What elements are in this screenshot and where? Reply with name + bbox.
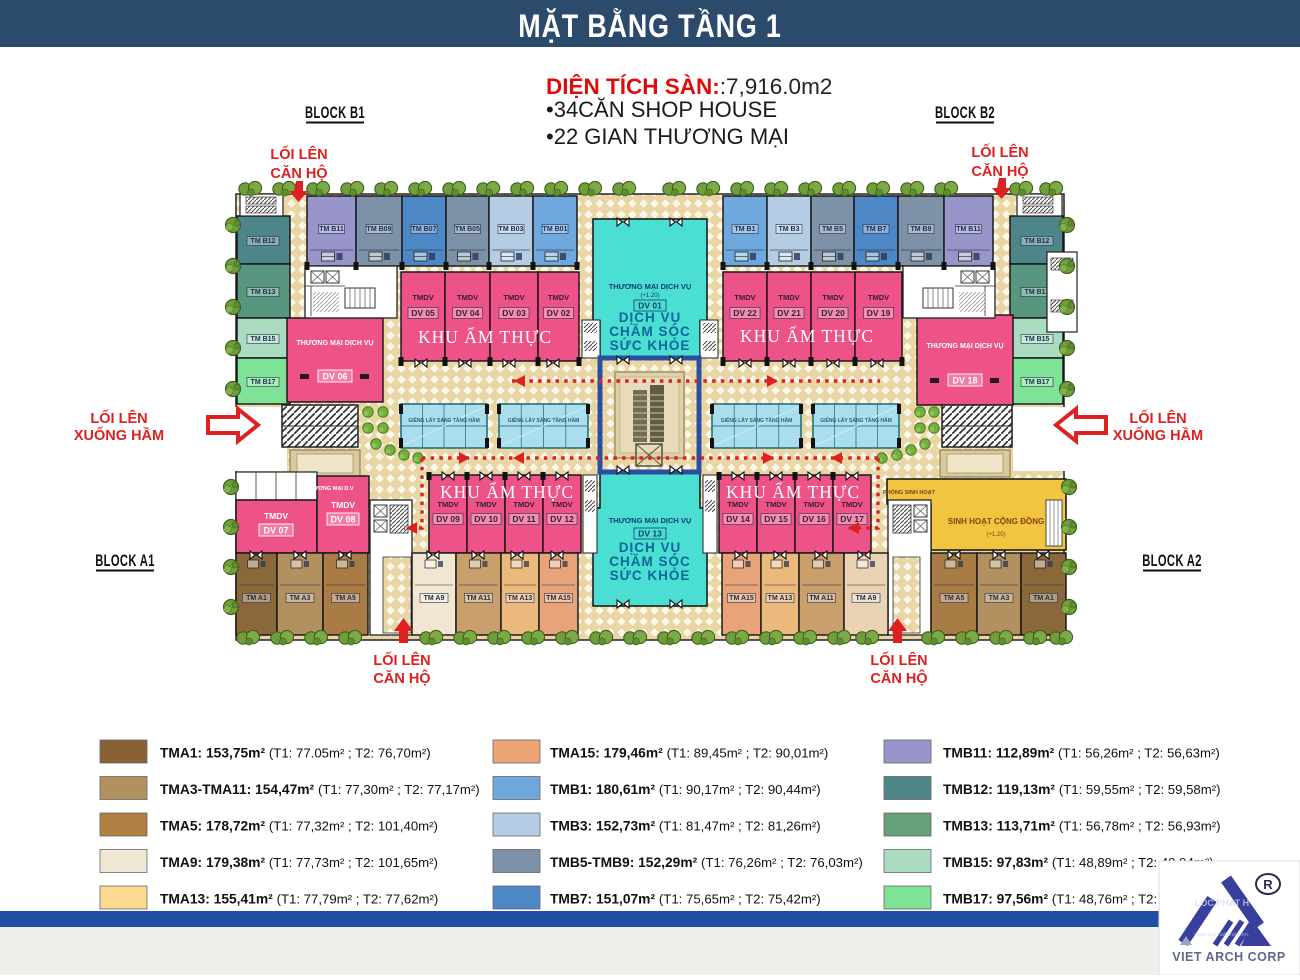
svg-text:DV 14: DV 14 xyxy=(726,514,750,524)
svg-text:DV 17: DV 17 xyxy=(840,514,864,524)
svg-text:DV 02: DV 02 xyxy=(547,308,571,318)
svg-text:GIẾNG LẤY SÁNG TẦNG HẦM: GIẾNG LẤY SÁNG TẦNG HẦM xyxy=(820,417,892,424)
svg-text:DỊCH VỤ: DỊCH VỤ xyxy=(619,540,682,555)
svg-text:TM B1: TM B1 xyxy=(735,226,756,233)
svg-text:THƯƠNG MẠI DỊCH VỤ: THƯƠNG MẠI DỊCH VỤ xyxy=(609,516,692,525)
svg-text:TMDV: TMDV xyxy=(331,500,355,510)
svg-text:TM B05: TM B05 xyxy=(455,226,480,233)
svg-text:TM A5: TM A5 xyxy=(335,595,356,602)
svg-text:LỐI LÊN: LỐI LÊN xyxy=(373,651,430,669)
svg-text:•22 GIAN THƯƠNG MẠI: •22 GIAN THƯƠNG MẠI xyxy=(546,124,789,149)
svg-text:TM B12: TM B12 xyxy=(251,238,276,245)
svg-text:(+1.20): (+1.20) xyxy=(640,293,659,299)
svg-text:KHU ẨM THỰC: KHU ẨM THỰC xyxy=(740,326,874,346)
svg-text:TMB1: 180,61m² (T1: 90,17m² ;: TMB1: 180,61m² (T1: 90,17m² ; T2: 90,44m… xyxy=(550,782,821,797)
svg-text:LỐI LÊN: LỐI LÊN xyxy=(870,651,927,669)
svg-text:TM A11: TM A11 xyxy=(809,595,833,602)
svg-text:www.locphatland.com.: www.locphatland.com. xyxy=(1194,932,1250,938)
svg-text:TMB5-TMB9: 152,29m² (T1: 76,26: TMB5-TMB9: 152,29m² (T1: 76,26m² ; T2: 7… xyxy=(550,855,863,870)
svg-text:CĂN HỘ: CĂN HỘ xyxy=(870,669,927,687)
svg-text:PHÒNG SINH HOẠT: PHÒNG SINH HOẠT xyxy=(883,488,936,496)
svg-text:XUỐNG HẦM: XUỐNG HẦM xyxy=(1113,426,1203,444)
svg-text:TMDV: TMDV xyxy=(734,293,755,302)
svg-text:TM B07: TM B07 xyxy=(412,226,437,233)
svg-text:TM A9: TM A9 xyxy=(856,595,877,602)
svg-text:TMB7: 151,07m² (T1: 75,65m² ;: TMB7: 151,07m² (T1: 75,65m² ; T2: 75,42m… xyxy=(550,892,821,907)
svg-text:SINH HOẠT CỘNG ĐỒNG: SINH HOẠT CỘNG ĐỒNG xyxy=(948,516,1044,526)
svg-text:DV 13: DV 13 xyxy=(638,529,662,539)
svg-text:R: R xyxy=(1263,877,1273,892)
svg-text:TM A15: TM A15 xyxy=(729,595,754,602)
svg-text:DV 20: DV 20 xyxy=(821,308,845,318)
svg-text:DV 16: DV 16 xyxy=(802,514,826,524)
svg-text:TM B15: TM B15 xyxy=(1025,336,1050,343)
svg-text:TMDV: TMDV xyxy=(457,293,478,302)
svg-text:CĂN HỘ: CĂN HỘ xyxy=(971,162,1028,180)
svg-text:TMA13: 155,41m² (T1: 77,79m² ;: TMA13: 155,41m² (T1: 77,79m² ; T2: 77,62… xyxy=(160,892,438,907)
svg-text:LOC PHAT H: LOC PHAT H xyxy=(1195,898,1249,908)
svg-text:DV 22: DV 22 xyxy=(733,308,757,318)
svg-text:TM A11: TM A11 xyxy=(466,595,490,602)
svg-text:TMB12: 119,13m² (T1: 59,55m² ;: TMB12: 119,13m² (T1: 59,55m² ; T2: 59,58… xyxy=(943,782,1221,797)
svg-text:TM A1: TM A1 xyxy=(1033,595,1054,602)
svg-text:TMA9: 179,38m² (T1: 77,73m² ;: TMA9: 179,38m² (T1: 77,73m² ; T2: 101,65… xyxy=(160,855,438,870)
svg-text:DV 11: DV 11 xyxy=(512,514,535,524)
svg-text:DV 06: DV 06 xyxy=(322,372,347,382)
svg-text:TM B15: TM B15 xyxy=(251,336,276,343)
svg-text:KHU ẨM THỰC: KHU ẨM THỰC xyxy=(418,327,552,347)
svg-text:TMA5: 178,72m² (T1: 77,32m² ;: TMA5: 178,72m² (T1: 77,32m² ; T2: 101,40… xyxy=(160,819,438,834)
svg-text:THƯƠNG MẠI DỊCH VỤ: THƯƠNG MẠI DỊCH VỤ xyxy=(926,343,1003,350)
svg-text:TMB3: 152,73m² (T1: 81,47m² ;: TMB3: 152,73m² (T1: 81,47m² ; T2: 81,26m… xyxy=(550,819,821,834)
svg-text:TMB13: 113,71m² (T1: 56,78m² ;: TMB13: 113,71m² (T1: 56,78m² ; T2: 56,93… xyxy=(943,819,1221,834)
svg-text:LỐI LÊN: LỐI LÊN xyxy=(971,143,1028,161)
svg-text:DV 05: DV 05 xyxy=(411,308,435,318)
svg-text:TM B17: TM B17 xyxy=(1025,379,1050,386)
svg-text:TM A3: TM A3 xyxy=(989,595,1010,602)
svg-text:TM A5: TM A5 xyxy=(944,595,965,602)
svg-text:CĂN HỘ: CĂN HỘ xyxy=(270,164,327,182)
svg-text:VIET ARCH CORP: VIET ARCH CORP xyxy=(1172,950,1286,964)
svg-text:THƯƠNG MẠI DỊCH VỤ: THƯƠNG MẠI DỊCH VỤ xyxy=(609,282,692,291)
svg-text:DV 18: DV 18 xyxy=(952,376,977,386)
svg-text:TMDV: TMDV xyxy=(412,293,433,302)
svg-text:DV 21: DV 21 xyxy=(777,308,801,318)
svg-text:DV 19: DV 19 xyxy=(867,308,891,318)
svg-text:DIỆN TÍCH SÀN::7,916.0m2: DIỆN TÍCH SÀN::7,916.0m2 xyxy=(546,74,832,99)
svg-text:BLOCK A2: BLOCK A2 xyxy=(1142,551,1202,570)
svg-text:TM B3: TM B3 xyxy=(779,226,800,233)
svg-text:CHĂM SÓC: CHĂM SÓC xyxy=(609,324,691,339)
svg-text:DV 04: DV 04 xyxy=(456,308,480,318)
svg-text:DV 15: DV 15 xyxy=(764,514,788,524)
svg-text:(+1.20): (+1.20) xyxy=(986,532,1005,538)
svg-text:TM B17: TM B17 xyxy=(251,379,276,386)
svg-text:SỨC KHỎE: SỨC KHỎE xyxy=(610,338,691,353)
svg-text:TM A15: TM A15 xyxy=(546,595,571,602)
svg-text:GIẾNG LẤY SÁNG TẦNG HẦM: GIẾNG LẤY SÁNG TẦNG HẦM xyxy=(721,417,793,424)
svg-text:TM B5: TM B5 xyxy=(822,226,843,233)
svg-text:DV 01: DV 01 xyxy=(638,301,662,311)
svg-text:TMDV: TMDV xyxy=(503,293,524,302)
svg-text:TM B7: TM B7 xyxy=(866,226,887,233)
svg-text:TMA1: 153,75m² (T1: 77.05m² ;: TMA1: 153,75m² (T1: 77.05m² ; T2: 76,70m… xyxy=(160,746,431,761)
svg-text:TM B11: TM B11 xyxy=(319,226,344,233)
svg-text:DV 10: DV 10 xyxy=(474,514,498,524)
svg-text:THƯƠNG MẠI DỊCH VỤ: THƯƠNG MẠI DỊCH VỤ xyxy=(296,340,373,347)
svg-text:TM B13: TM B13 xyxy=(251,289,276,296)
svg-text:DV 07: DV 07 xyxy=(263,526,288,536)
svg-text:DỊCH VỤ: DỊCH VỤ xyxy=(619,310,682,325)
svg-text:TM A3: TM A3 xyxy=(290,595,311,602)
svg-text:KHU ẨM THỰC: KHU ẨM THỰC xyxy=(726,482,860,502)
svg-text:TM B11: TM B11 xyxy=(956,226,981,233)
svg-text:BLOCK B2: BLOCK B2 xyxy=(935,103,995,122)
svg-text:DV 08: DV 08 xyxy=(330,515,355,525)
svg-text:TMDV: TMDV xyxy=(778,293,799,302)
svg-text:LỐI LÊN: LỐI LÊN xyxy=(90,409,147,427)
svg-text:TM A9: TM A9 xyxy=(424,595,445,602)
svg-text:TMDV: TMDV xyxy=(548,293,569,302)
svg-text:BLOCK B1: BLOCK B1 xyxy=(305,103,365,122)
svg-text:TM B12: TM B12 xyxy=(1025,238,1050,245)
svg-text:TMDV: TMDV xyxy=(822,293,843,302)
svg-text:KHU ẨM THỰC: KHU ẨM THỰC xyxy=(440,482,574,502)
svg-text:TM A13: TM A13 xyxy=(768,595,793,602)
svg-text:TMB11: 112,89m² (T1: 56,26m² ;: TMB11: 112,89m² (T1: 56,26m² ; T2: 56,63… xyxy=(943,746,1220,761)
svg-text:TM A13: TM A13 xyxy=(508,595,533,602)
svg-text:THƯƠNG MẠI D.V: THƯƠNG MẠI D.V xyxy=(306,486,353,492)
svg-text:TMA3-TMA11: 154,47m² (T1: 77,3: TMA3-TMA11: 154,47m² (T1: 77,30m² ; T2: … xyxy=(160,782,480,797)
svg-text:CĂN HỘ: CĂN HỘ xyxy=(373,669,430,687)
svg-text:GIẾNG LẤY SÁNG TẦNG HẦM: GIẾNG LẤY SÁNG TẦNG HẦM xyxy=(408,417,480,424)
svg-text:TMDV: TMDV xyxy=(264,511,288,521)
svg-text:LỐI LÊN: LỐI LÊN xyxy=(270,145,327,163)
svg-text:TM A1: TM A1 xyxy=(246,595,267,602)
svg-text:DV 12: DV 12 xyxy=(550,514,574,524)
svg-text:TM B01: TM B01 xyxy=(543,226,568,233)
svg-text:CHĂM SÓC: CHĂM SÓC xyxy=(609,554,691,569)
svg-text:DV 09: DV 09 xyxy=(436,514,460,524)
svg-text:TMA15: 179,46m² (T1: 89,45m² ;: TMA15: 179,46m² (T1: 89,45m² ; T2: 90,01… xyxy=(550,746,828,761)
svg-text:SỨC KHỎE: SỨC KHỎE xyxy=(610,568,691,583)
svg-text:DV 03: DV 03 xyxy=(502,308,526,318)
svg-text:XUỐNG HẦM: XUỐNG HẦM xyxy=(74,426,164,444)
svg-text:GIẾNG LẤY SÁNG TẦNG HẦM: GIẾNG LẤY SÁNG TẦNG HẦM xyxy=(508,417,580,424)
svg-text:TM B13: TM B13 xyxy=(1025,289,1050,296)
svg-text:TM B9: TM B9 xyxy=(911,226,932,233)
svg-text:TM B03: TM B03 xyxy=(499,226,524,233)
svg-text:LỐI LÊN: LỐI LÊN xyxy=(1129,409,1186,427)
svg-text:TMDV: TMDV xyxy=(868,293,889,302)
svg-text:TM B09: TM B09 xyxy=(367,226,392,233)
svg-text:•34CĂN SHOP HOUSE: •34CĂN SHOP HOUSE xyxy=(546,97,777,122)
svg-text:MẶT BẰNG TẦNG 1: MẶT BẰNG TẦNG 1 xyxy=(518,8,781,45)
svg-text:BLOCK A1: BLOCK A1 xyxy=(95,551,155,570)
